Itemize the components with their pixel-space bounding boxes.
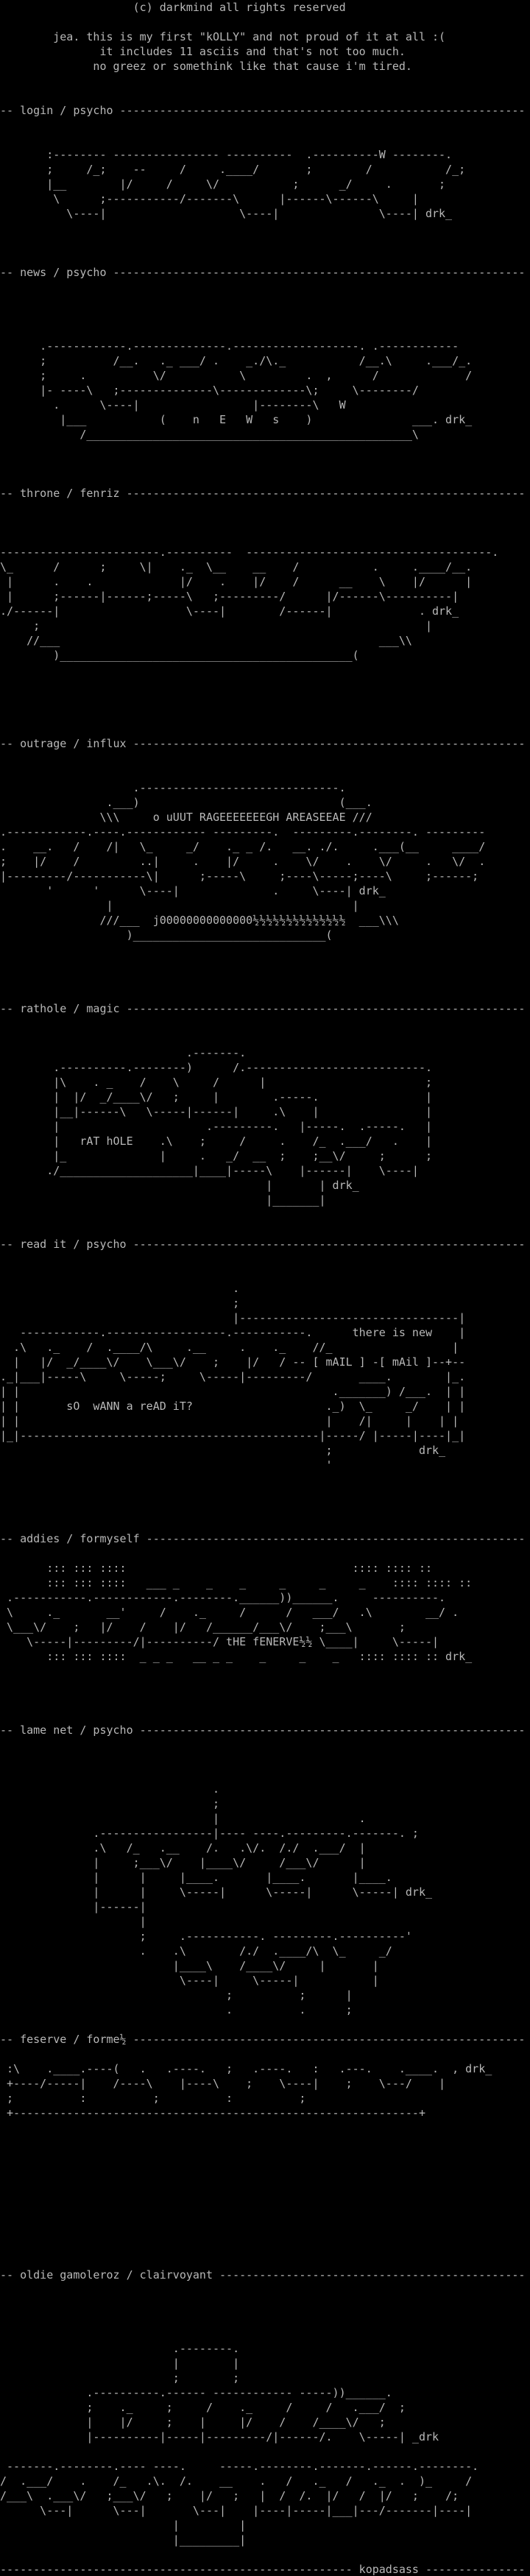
section-header-login: -- login / psycho ----------------------…: [0, 103, 525, 118]
footer-kopadsass: ----------------------------------------…: [0, 2562, 525, 2576]
ascii-art-feserve: :\ .____.----( . .----. ; .----. : .---.…: [0, 2061, 492, 2120]
ascii-art-throne: ------------------------.---------- ----…: [0, 545, 498, 663]
ascii-art-news: .------------.--------------.-----------…: [0, 339, 472, 442]
section-header-oldie-gamoleroz: -- oldie gamoleroz / clairvoyant -------…: [0, 2268, 525, 2282]
ascii-art-oldie-gamoleroz: .--------. | | ; ; .----------.------ --…: [0, 2341, 478, 2547]
ascii-art-login: :-------- ---------------- ---------- .-…: [0, 147, 465, 221]
section-header-lame-net: -- lame net / psycho -------------------…: [0, 1723, 525, 1737]
section-header-throne: -- throne / fenriz ---------------------…: [0, 486, 525, 501]
section-header-outrage: -- outrage / influx --------------------…: [0, 736, 525, 751]
ascii-art-addies: ::: ::: :::: :::: :::: :: ::: ::: :::: _…: [0, 1561, 472, 1664]
section-header-read-it: -- read it / psycho --------------------…: [0, 1237, 525, 1252]
section-header-feserve: -- feserve / forme½ --------------------…: [0, 2032, 525, 2047]
section-header-rathole: -- rathole / magic ---------------------…: [0, 1001, 525, 1016]
ascii-art-outrage: .------------------------------. .___) (…: [0, 780, 485, 942]
ascii-kolly-page: (c) darkmind all rights reserved jea. th…: [0, 0, 530, 2576]
section-header-addies: -- addies / formyself ------------------…: [0, 1531, 525, 1546]
copyright-and-intro-text: (c) darkmind all rights reserved jea. th…: [0, 0, 445, 74]
ascii-art-rathole: .-------. .----------.--------) /.------…: [0, 1045, 432, 1207]
ascii-art-lame-net: . ; | . .-----------------|---- ----.---…: [0, 1782, 432, 2017]
ascii-art-read-it: . ; |---------------------------------| …: [0, 1281, 465, 1472]
section-header-news: -- news / psycho -----------------------…: [0, 265, 525, 280]
